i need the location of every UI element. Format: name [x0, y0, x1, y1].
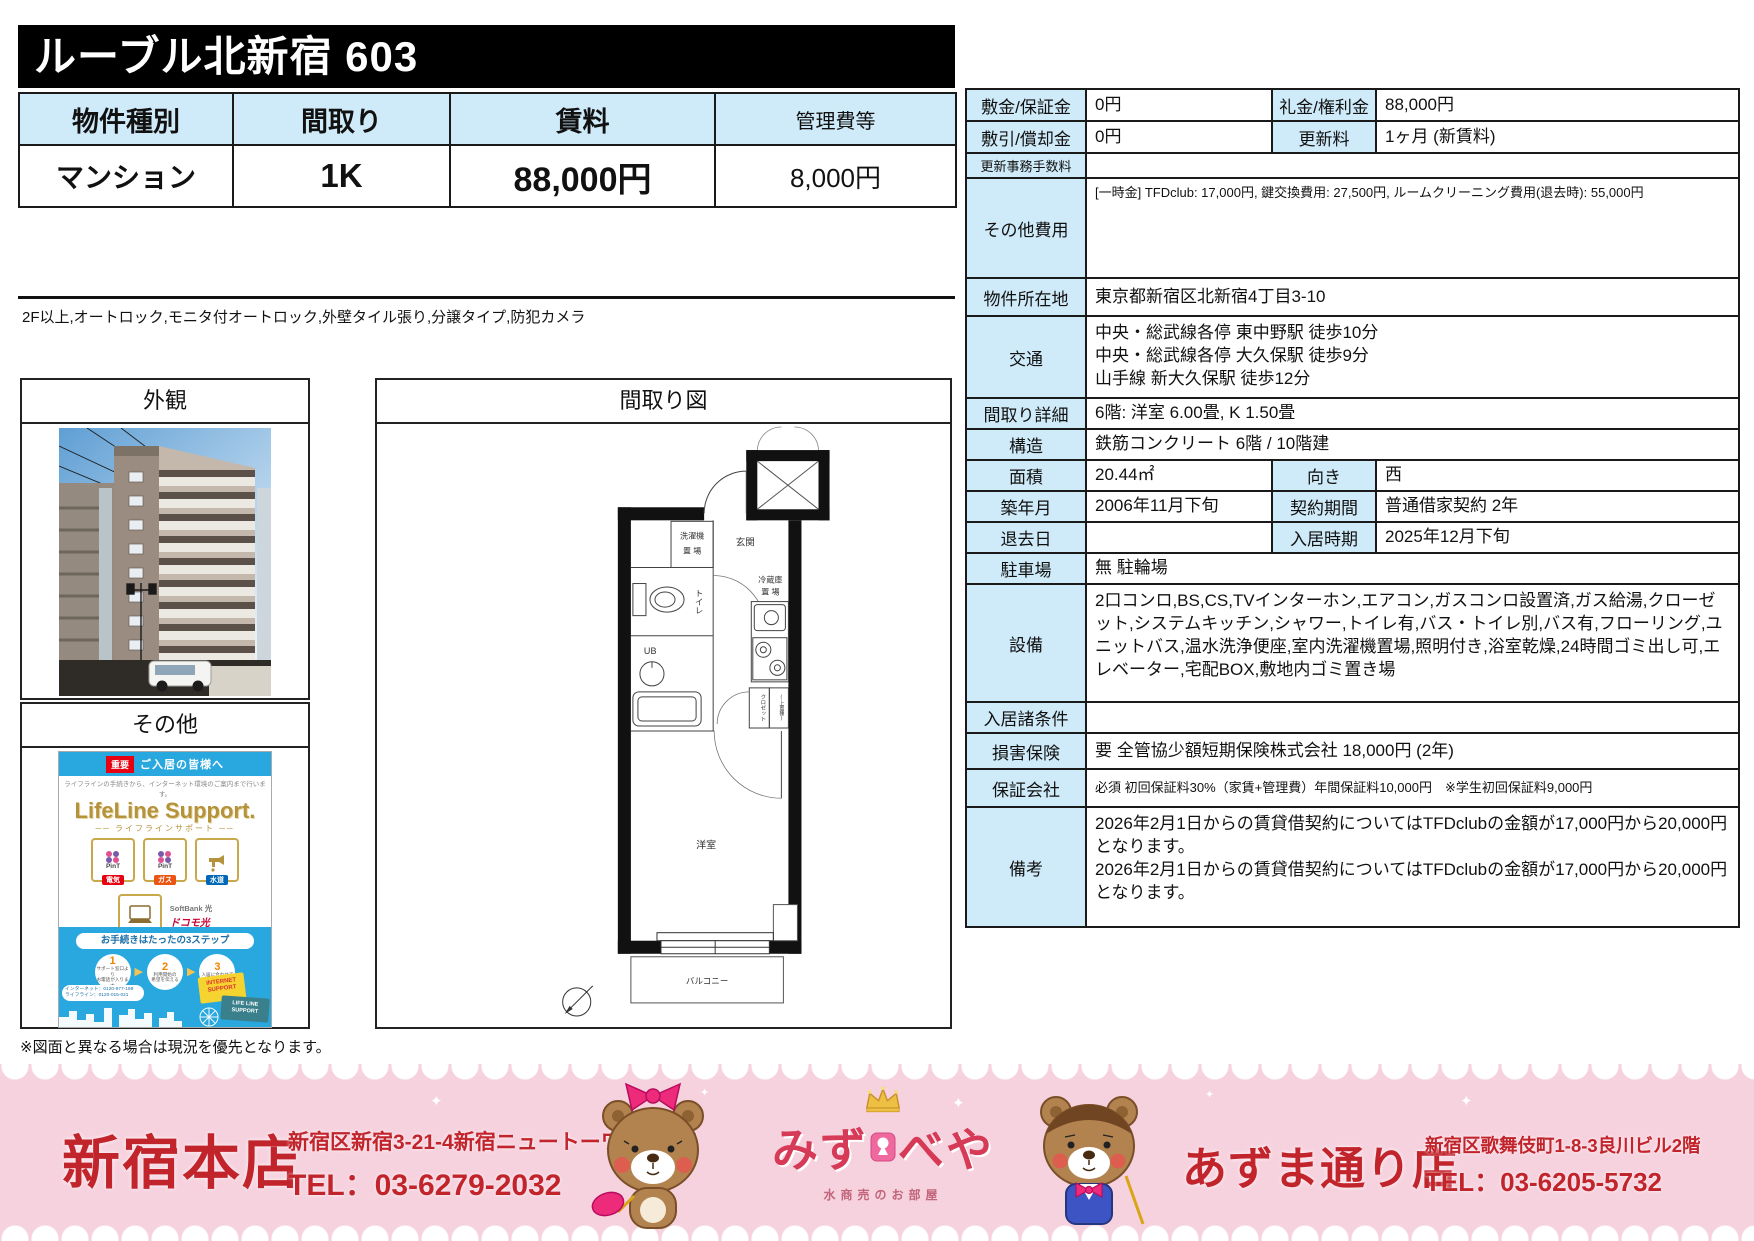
table-row: 敷引/償却金0円更新料1ヶ月 (新賃料)	[966, 121, 1739, 153]
row-value: 88,000円	[1376, 89, 1739, 121]
row-label: 更新料	[1272, 121, 1376, 153]
fridge-label: 冷蔵庫	[758, 575, 782, 585]
row-value: 鉄筋コンクリート 6階 / 10階建	[1086, 429, 1739, 460]
building-photo	[59, 428, 271, 696]
exterior-photo-title: 外観	[22, 380, 308, 424]
row-label: 面積	[966, 460, 1086, 491]
row-label: その他費用	[966, 178, 1086, 278]
row-value: 東京都新宿区北新宿4丁目3-10	[1086, 278, 1739, 316]
left-building-icon	[59, 483, 114, 663]
phone-numbers: インターネット：0120-977-198 ライフライン：0120-015-021	[62, 985, 144, 1001]
table-row: 築年月2006年11月下旬契約期間普通借家契約 2年	[966, 491, 1739, 522]
row-value: [一時金] TFDclub: 17,000円, 鍵交換費用: 27,500円, …	[1086, 178, 1739, 278]
table-row: 間取り詳細6階: 洋室 6.00畳, K 1.50畳	[966, 398, 1739, 429]
summary-header-layout: 間取り	[233, 93, 450, 145]
bath-icon	[633, 662, 701, 726]
table-row: 敷金/保証金0円礼金/権利金88,000円	[966, 89, 1739, 121]
row-value: 20.44㎡	[1086, 460, 1272, 491]
row-value	[1086, 522, 1272, 553]
row-label: 敷金/保証金	[966, 89, 1086, 121]
boy-bear-mascot-icon	[1022, 1080, 1157, 1232]
store-azuma-address: 新宿区歌舞伎町1-8-3良川ビル2階	[1425, 1132, 1700, 1158]
row-value: 2025年12月下旬	[1376, 522, 1739, 553]
table-row: その他費用[一時金] TFDclub: 17,000円, 鍵交換費用: 27,5…	[966, 178, 1739, 278]
elevator-icon	[746, 427, 829, 520]
flyer-steps-section: お手続きはたったの3ステップ 1 サポート窓口より お電話が入ります ▶ 2 利…	[59, 927, 271, 1027]
table-row: 交通中央・総武線各停 東中野駅 徒歩10分 中央・総武線各停 大久保駅 徒歩9分…	[966, 316, 1739, 398]
details-table: 敷金/保証金0円礼金/権利金88,000円敷引/償却金0円更新料1ヶ月 (新賃料…	[965, 88, 1740, 928]
table-row: 更新事務手数料	[966, 153, 1739, 178]
electricity-badge: 電気	[102, 875, 124, 885]
row-value: 要 全管協少額短期保険株式会社 18,000円 (2年)	[1086, 733, 1739, 769]
table-row: 構造鉄筋コンクリート 6階 / 10階建	[966, 429, 1739, 460]
row-label: 入居時期	[1272, 522, 1376, 553]
row-value: 1ヶ月 (新賃料)	[1376, 121, 1739, 153]
room-label: 洋室	[696, 838, 716, 851]
kitchen-icon	[751, 602, 788, 682]
sparkle-icon: ✦	[1460, 1092, 1473, 1110]
water-icon: 水道	[195, 838, 239, 882]
table-row: 損害保険要 全管協少額短期保険株式会社 18,000円 (2年)	[966, 733, 1739, 769]
washer-space	[671, 521, 713, 567]
row-value: 中央・総武線各停 東中野駅 徒歩10分 中央・総武線各停 大久保駅 徒歩9分 山…	[1086, 316, 1739, 398]
room-door-icon	[714, 731, 781, 798]
shelf-label: (上置棚)	[778, 694, 784, 721]
store-azuma-tel: TEL：03-6205-5732	[1425, 1162, 1700, 1199]
summary-header-rent: 賃料	[450, 93, 715, 145]
flyer-brand: LifeLine Support.	[59, 798, 271, 823]
compass-icon	[563, 986, 593, 1016]
keyhole-icon	[870, 1132, 896, 1162]
summary-table: 物件種別 間取り 賃料 管理費等 マンション 1K 88,000円 8,000円	[18, 92, 957, 208]
other-panel-title: その他	[22, 704, 308, 748]
closet-label: クロゼット	[759, 694, 766, 722]
logo-text: みず べや	[748, 1114, 1018, 1180]
row-value: 必須 初回保証料30%（家賃+管理費）年間保証料10,000円 ※学生初回保証料…	[1086, 769, 1739, 807]
row-label: 損害保険	[966, 733, 1086, 769]
row-value: 0円	[1086, 89, 1272, 121]
flyer-audience: ご入居の皆様へ	[140, 756, 224, 772]
row-label: 更新事務手数料	[966, 153, 1086, 178]
table-row: 退去日入居時期2025年12月下旬	[966, 522, 1739, 553]
softbank-label: SoftBank 光	[170, 903, 213, 914]
summary-header-type: 物件種別	[19, 93, 233, 145]
row-value: 2口コンロ,BS,CS,TVインターホン,エアコン,ガスコンロ設置済,ガス給湯,…	[1086, 584, 1739, 702]
summary-value-fees: 8,000円	[715, 145, 956, 207]
row-value: 0円	[1086, 121, 1272, 153]
main-building-icon	[114, 446, 255, 666]
window-icon	[657, 933, 773, 954]
sparkle-icon: ✦	[430, 1092, 443, 1110]
row-label: 保証会社	[966, 769, 1086, 807]
row-label: 構造	[966, 429, 1086, 460]
pink-bow-icon	[626, 1084, 680, 1110]
pipe-space	[773, 905, 797, 941]
table-row: 駐車場無 駐輪場	[966, 553, 1739, 584]
store-azuma-contact: 新宿区歌舞伎町1-8-3良川ビル2階 TEL：03-6205-5732	[1425, 1132, 1700, 1199]
utility-icons-row: PinT 電気 PinT ガス 水道	[59, 838, 271, 882]
washer-label: 洗濯機	[680, 530, 704, 540]
summary-value-layout: 1K	[233, 145, 450, 207]
row-value: 普通借家契約 2年	[1376, 491, 1739, 522]
balcony-label: バルコニー	[686, 976, 728, 986]
sparkle-icon: ✦	[1205, 1088, 1214, 1101]
table-row: 物件所在地東京都新宿区北新宿4丁目3-10	[966, 278, 1739, 316]
girl-bear-mascot-icon	[588, 1082, 718, 1232]
flyer-tagline: ライフラインの手続きから、インターネット環境のご案内まで行います。	[59, 778, 271, 798]
summary-value-type: マンション	[19, 145, 233, 207]
row-label: 駐車場	[966, 553, 1086, 584]
lace-edge-bottom	[0, 1217, 1754, 1241]
row-label: 間取り詳細	[966, 398, 1086, 429]
row-value: 2006年11月下旬	[1086, 491, 1272, 522]
crown-icon	[860, 1086, 906, 1114]
summary-value-rent: 88,000円	[450, 145, 715, 207]
row-label: 敷引/償却金	[966, 121, 1086, 153]
feature-tags: 2F以上,オートロック,モニタ付オートロック,外壁タイル張り,分譲タイプ,防犯カ…	[22, 306, 952, 327]
table-row: 保証会社必須 初回保証料30%（家賃+管理費）年間保証料10,000円 ※学生初…	[966, 769, 1739, 807]
logo-subtitle: 水商売のお部屋	[748, 1186, 1018, 1203]
water-badge: 水道	[206, 875, 228, 885]
row-label: 契約期間	[1272, 491, 1376, 522]
row-value: 2026年2月1日からの賃貸借契約についてはTFDclubの金額が17,000円…	[1086, 807, 1739, 927]
arrow-icon: ▶	[187, 954, 195, 990]
toilet-label: トイレ	[694, 589, 704, 615]
table-row: 設備2口コンロ,BS,CS,TVインターホン,エアコン,ガスコンロ設置済,ガス給…	[966, 584, 1739, 702]
table-row: 面積20.44㎡向き西	[966, 460, 1739, 491]
store-azuma-name: あずま通り店	[1182, 1132, 1458, 1197]
step-2: 2 利用開始の 希望を伝える	[147, 954, 183, 990]
entrance-door-icon	[704, 471, 746, 513]
toilet-icon	[633, 584, 684, 616]
table-row: 入居諸条件	[966, 702, 1739, 733]
gas-badge: ガス	[154, 875, 176, 885]
row-label: 向き	[1272, 460, 1376, 491]
row-value: 6階: 洋室 6.00畳, K 1.50畳	[1086, 398, 1739, 429]
row-label: 物件所在地	[966, 278, 1086, 316]
disclaimer-note: ※図面と異なる場合は現況を優先となります。	[20, 1036, 331, 1057]
floorplan-drawing: 洗濯機 置 場 玄関 トイレ UB 冷蔵庫 置 場	[379, 425, 948, 1027]
row-label: 入居諸条件	[966, 702, 1086, 733]
lifeline-support-card: LIFE LINE SUPPORT	[220, 995, 270, 1022]
flyer-header: 重要 ご入居の皆様へ	[59, 752, 271, 776]
summary-header-fees: 管理費等	[715, 93, 956, 145]
row-label: 設備	[966, 584, 1086, 702]
divider-rule	[18, 296, 955, 299]
row-label: 礼金/権利金	[1272, 89, 1376, 121]
right-building-icon	[257, 488, 271, 666]
row-value: 無 駐輪場	[1086, 553, 1739, 584]
store-shinjuku-name: 新宿本店	[62, 1116, 302, 1200]
lace-edge-top	[0, 1064, 1754, 1088]
gas-icon: PinT ガス	[143, 838, 187, 882]
entrance-label: 玄関	[736, 536, 755, 548]
svg-text:置 場: 置 場	[761, 587, 779, 597]
other-panel: その他 重要 ご入居の皆様へ ライフラインの手続きから、インターネット環境のご案…	[20, 702, 310, 1029]
row-label: 築年月	[966, 491, 1086, 522]
row-label: 備考	[966, 807, 1086, 927]
floorplan-panel: 間取り図	[375, 378, 952, 1029]
row-value	[1086, 153, 1739, 178]
floorplan-title: 間取り図	[377, 380, 950, 424]
flyer-brand-kana: ── ライフラインサポート ──	[59, 823, 271, 834]
row-label: 退去日	[966, 522, 1086, 553]
row-value	[1086, 702, 1739, 733]
property-sheet: ルーブル北新宿 603 物件種別 間取り 賃料 管理費等 マンション 1K 88…	[0, 0, 1754, 1241]
row-label: 交通	[966, 316, 1086, 398]
exterior-photo-panel: 外観	[20, 378, 310, 700]
mizubeya-logo: みず べや 水商売のお部屋	[748, 1086, 1018, 1203]
important-badge: 重要	[106, 756, 134, 773]
bath-label: UB	[644, 646, 657, 656]
page-title: ルーブル北新宿 603	[18, 25, 955, 88]
electricity-icon: PinT 電気	[91, 838, 135, 882]
footer-banner: ✦ ✦ ✦ ✦ ✦ 新宿本店 新宿区新宿3-21-4新宿ニュートーワビル1階 T…	[0, 1064, 1754, 1241]
table-row: 備考2026年2月1日からの賃貸借契約についてはTFDclubの金額が17,00…	[966, 807, 1739, 927]
lifeline-flyer: 重要 ご入居の皆様へ ライフラインの手続きから、インターネット環境のご案内まで行…	[58, 751, 272, 1028]
svg-text:置 場: 置 場	[683, 545, 701, 555]
steps-title: お手続きはたったの3ステップ	[76, 933, 254, 949]
row-value: 西	[1376, 460, 1739, 491]
